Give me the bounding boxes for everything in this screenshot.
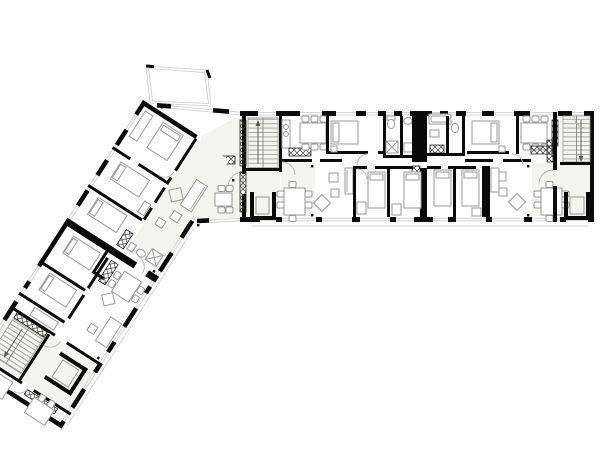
shaft-hatch (547, 140, 553, 162)
facade-wall (213, 110, 229, 111)
column-dot (311, 165, 313, 167)
stairs (248, 118, 278, 168)
column-dot (527, 214, 529, 216)
bed (404, 172, 421, 208)
coffee-table (87, 323, 98, 334)
bed (88, 197, 127, 232)
balcony-outline (146, 66, 211, 106)
wardrobe (129, 111, 153, 141)
shaft-hatch (240, 120, 246, 166)
east-end-wall (590, 112, 594, 222)
east-wing (240, 111, 594, 226)
desk (472, 208, 481, 216)
bed (462, 170, 479, 206)
floor-plan-page: Black-and-white architectural floor plan… (0, 0, 600, 472)
living-area (314, 168, 353, 211)
bed (39, 273, 77, 307)
living-area (491, 168, 525, 210)
bathroom-fixtures (383, 116, 415, 158)
facade-wall (197, 220, 209, 221)
bed (434, 170, 451, 206)
dining-table (521, 116, 548, 150)
coffee-table (499, 188, 507, 196)
bed (472, 121, 505, 152)
shaft-hatch (430, 145, 444, 153)
party-wall (420, 112, 427, 162)
coffee-table (331, 189, 339, 197)
door-arc (357, 154, 368, 165)
bed (147, 122, 183, 160)
coffee-table (329, 173, 338, 182)
facade-wall (157, 105, 171, 106)
southwest-wing (0, 100, 237, 437)
bed (331, 121, 358, 152)
rug (509, 194, 526, 211)
column-dot (197, 224, 199, 226)
rug (314, 195, 331, 212)
bed (368, 172, 385, 208)
shaft-block (412, 116, 420, 174)
sofa (345, 168, 353, 194)
column-dot (527, 165, 529, 167)
sofa (96, 317, 122, 348)
column-dot (161, 106, 163, 108)
dining-table (215, 186, 233, 214)
desk (357, 202, 366, 214)
shaft-hatch (240, 172, 246, 212)
floor-plan-drawing: Black-and-white architectural floor plan… (0, 0, 600, 472)
bathroom-fixtures (427, 114, 465, 156)
column-dot (152, 270, 155, 273)
door-arc (357, 169, 367, 179)
sofa (491, 168, 499, 192)
rug (102, 293, 115, 306)
desk (392, 204, 401, 215)
dining-table (300, 116, 327, 150)
column-dot (97, 356, 100, 359)
column-dot (232, 179, 234, 181)
column-dot (311, 214, 313, 216)
